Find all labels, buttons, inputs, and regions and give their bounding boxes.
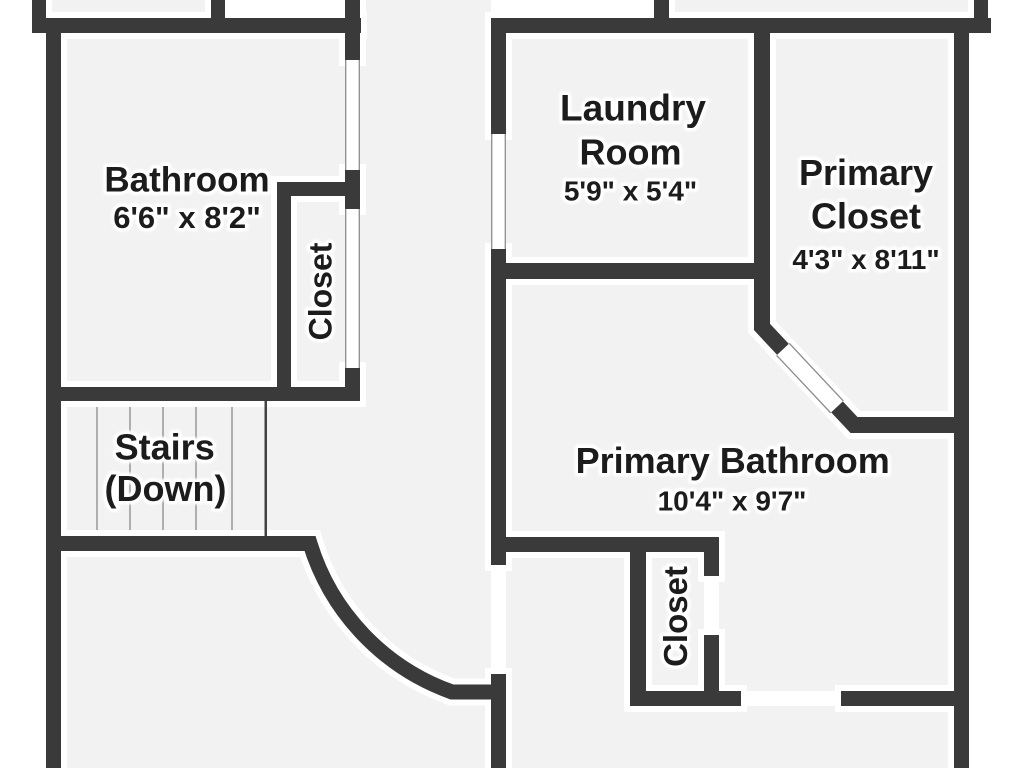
svg-text:Closet: Closet <box>811 195 921 236</box>
svg-text:6'6" x 8'2": 6'6" x 8'2" <box>113 200 261 235</box>
svg-text:10'4" x 9'7": 10'4" x 9'7" <box>658 485 807 516</box>
svg-text:Primary: Primary <box>799 152 933 193</box>
svg-text:5'9" x 5'4": 5'9" x 5'4" <box>564 175 697 206</box>
svg-text:Bathroom: Bathroom <box>104 160 269 199</box>
svg-text:Laundry: Laundry <box>560 88 706 129</box>
svg-text:Closet: Closet <box>303 242 339 340</box>
svg-text:(Down): (Down) <box>105 468 227 509</box>
svg-text:Primary Bathroom: Primary Bathroom <box>576 440 890 481</box>
svg-text:Closet: Closet <box>657 566 694 667</box>
svg-text:4'3" x 8'11": 4'3" x 8'11" <box>792 244 939 275</box>
svg-text:Stairs: Stairs <box>115 426 215 467</box>
svg-text:Room: Room <box>580 131 682 172</box>
